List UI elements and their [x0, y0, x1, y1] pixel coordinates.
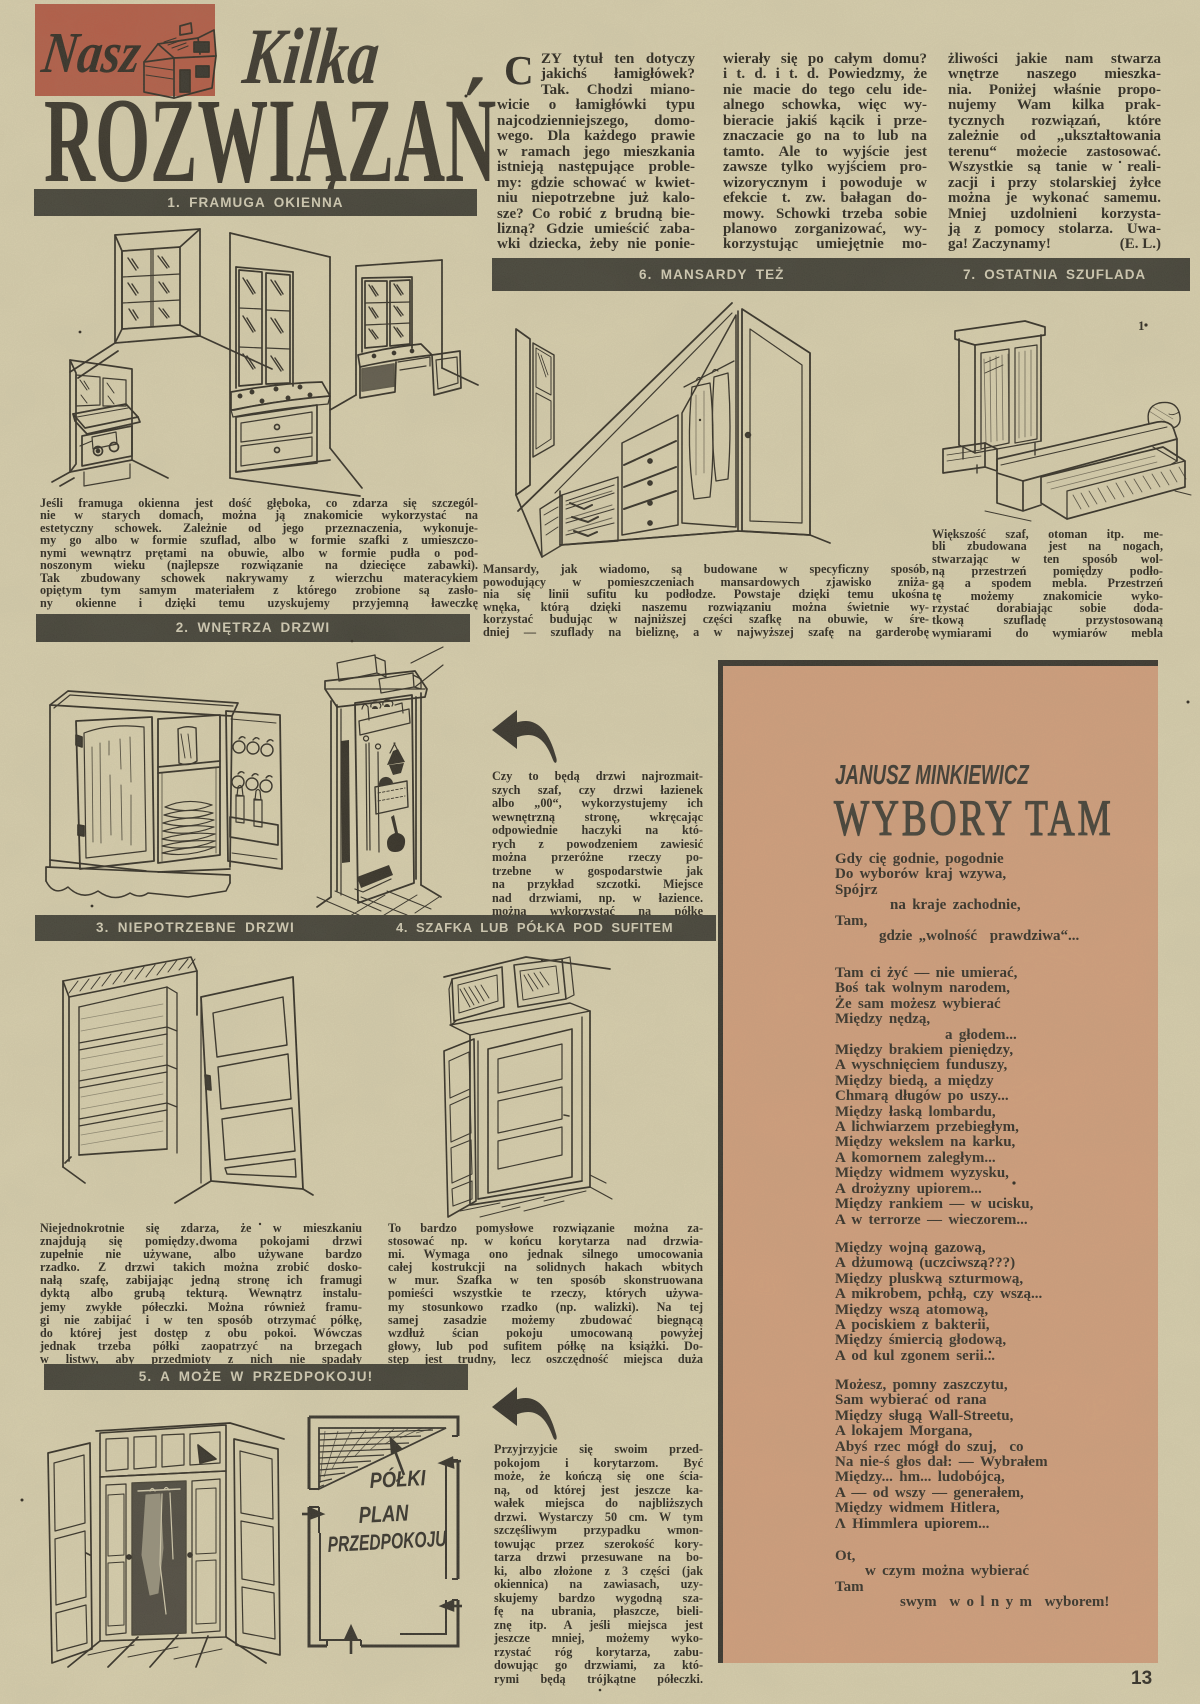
svg-text:PÓŁKI: PÓŁKI — [369, 1465, 427, 1493]
svg-text:PRZEDPOKOJU: PRZEDPOKOJU — [327, 1526, 448, 1557]
svg-text:PLAN: PLAN — [358, 1499, 410, 1528]
